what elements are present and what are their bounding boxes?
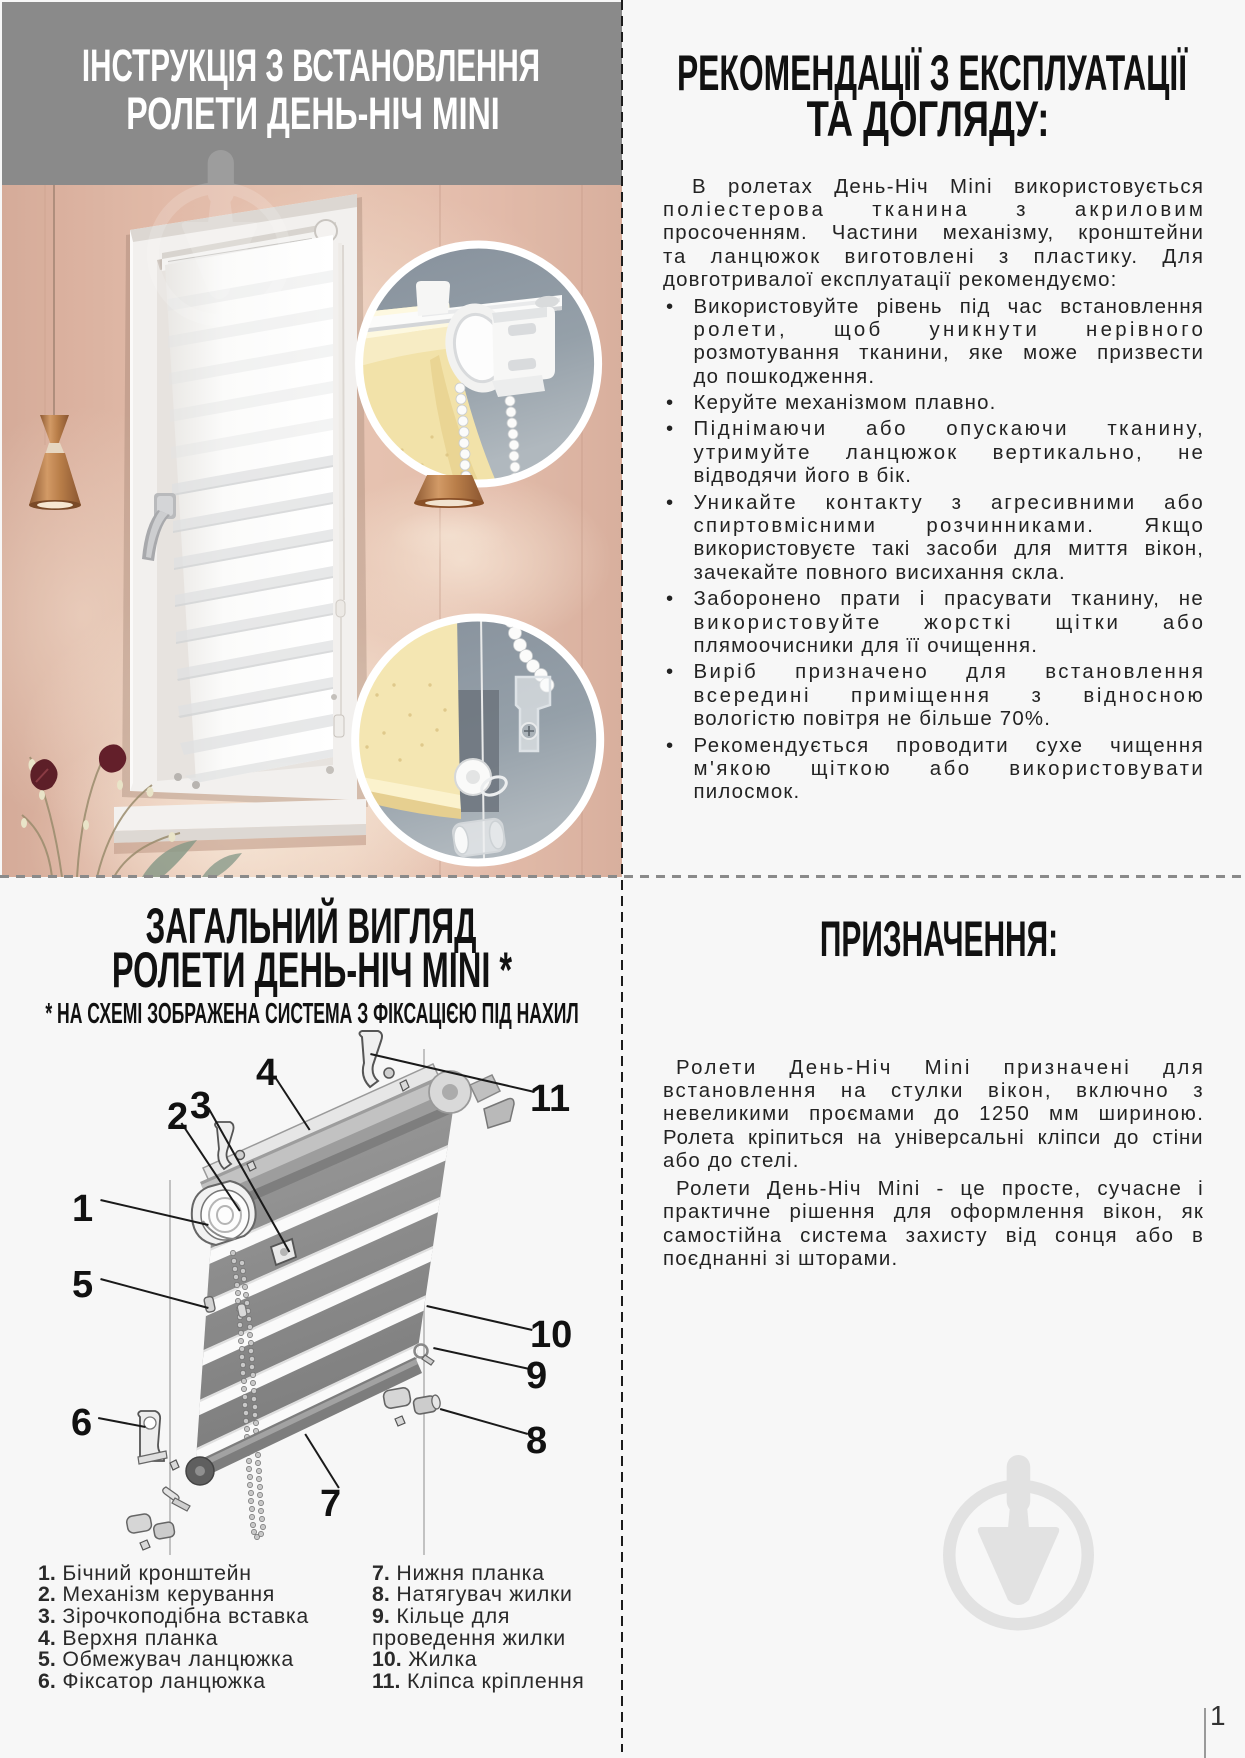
- svg-text:1: 1: [72, 1188, 93, 1230]
- svg-text:2: 2: [167, 1096, 188, 1138]
- svg-text:10: 10: [530, 1314, 572, 1356]
- svg-text:6: 6: [71, 1402, 92, 1444]
- svg-text:7: 7: [320, 1483, 341, 1525]
- svg-text:5: 5: [72, 1264, 93, 1306]
- svg-text:3: 3: [190, 1085, 211, 1127]
- svg-text:4: 4: [256, 1052, 277, 1094]
- svg-text:8: 8: [526, 1420, 547, 1462]
- svg-text:9: 9: [526, 1355, 547, 1397]
- svg-text:11: 11: [530, 1078, 570, 1120]
